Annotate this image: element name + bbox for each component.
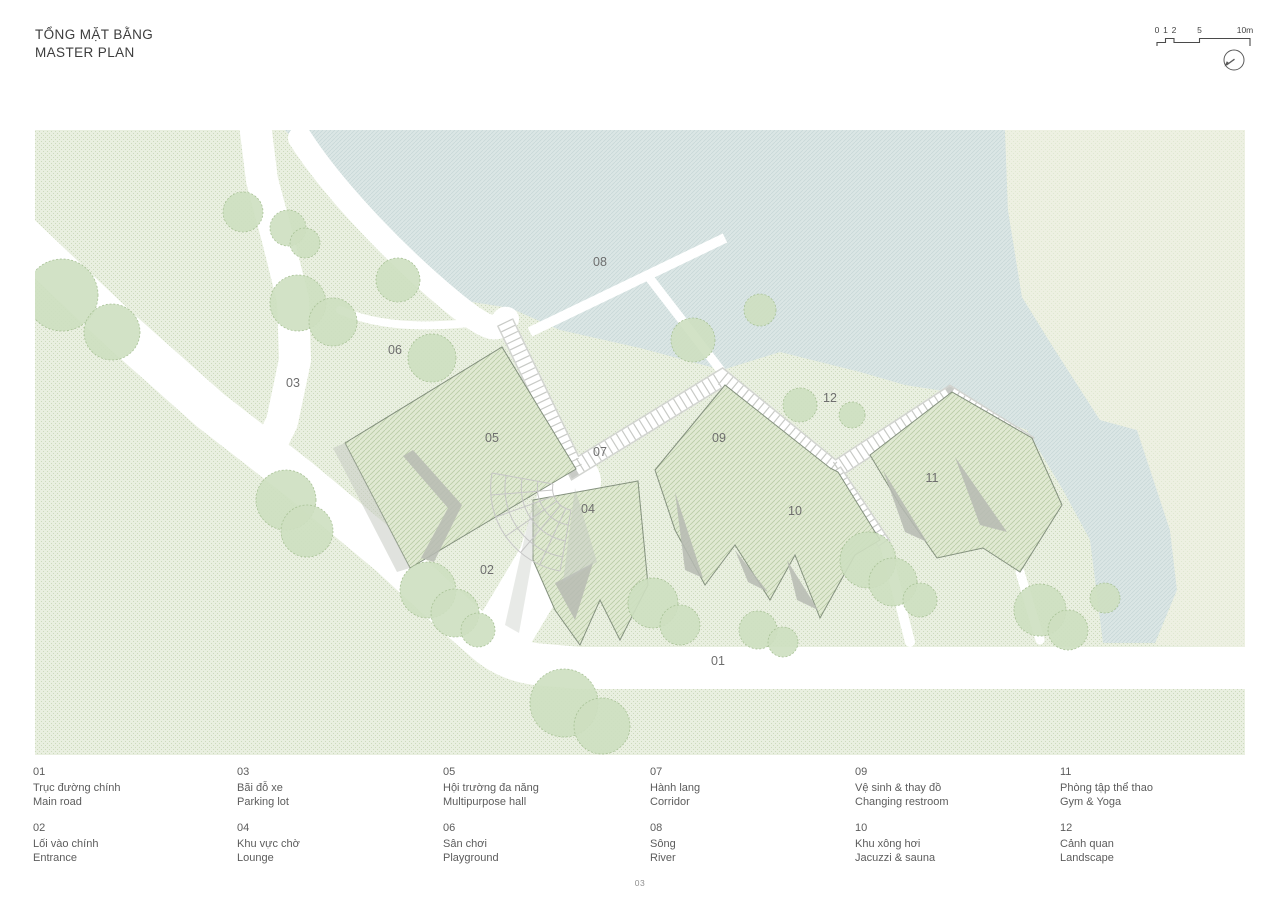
legend-vi: Hội trường đa năng	[443, 781, 633, 796]
legend-num: 06	[443, 821, 633, 836]
legend-en: Landscape	[1060, 851, 1250, 866]
legend-item-12: 12 Cảnh quan Landscape	[1060, 821, 1250, 866]
plan-marker-01: 01	[711, 654, 725, 668]
legend-en: Changing restroom	[855, 795, 1045, 810]
legend-item-03: 03 Bãi đỗ xe Parking lot	[237, 765, 427, 810]
plan-marker-10: 10	[788, 504, 802, 518]
plan-marker-11: 11	[926, 471, 939, 485]
site-plan-drawing: 01 02 03 04 05 06 07 08 09 10 11 12	[35, 130, 1245, 755]
master-plan-sheet: TỔNG MẶT BẰNG MASTER PLAN 0 1 2 5 10m	[0, 0, 1280, 904]
plan-marker-04: 04	[581, 502, 595, 516]
plan-marker-09: 09	[712, 431, 726, 445]
plan-marker-12: 12	[823, 391, 837, 405]
legend-en: Playground	[443, 851, 633, 866]
legend-num: 03	[237, 765, 427, 780]
page-title-vi: TỔNG MẶT BẰNG	[35, 26, 153, 44]
legend-en: Jacuzzi & sauna	[855, 851, 1045, 866]
legend-item-02: 02 Lối vào chính Entrance	[33, 821, 223, 866]
site-plan: 01 02 03 04 05 06 07 08 09 10 11 12	[35, 130, 1245, 755]
legend-num: 11	[1060, 765, 1250, 780]
legend-vi: Cảnh quan	[1060, 837, 1250, 852]
legend-en: Entrance	[33, 851, 223, 866]
legend-en: Parking lot	[237, 795, 427, 810]
legend-vi: Vệ sinh & thay đồ	[855, 781, 1045, 796]
legend-vi: Khu xông hơi	[855, 837, 1045, 852]
legend-item-06: 06 Sân chơi Playground	[443, 821, 633, 866]
legend-vi: Lối vào chính	[33, 837, 223, 852]
scale-tick-1: 1	[1163, 25, 1168, 35]
scale-tick-5: 5	[1197, 25, 1202, 35]
legend-item-01: 01 Trục đường chính Main road	[33, 765, 223, 810]
legend-vi: Sông	[650, 837, 840, 852]
plan-marker-06: 06	[388, 343, 402, 357]
legend-item-04: 04 Khu vực chờ Lounge	[237, 821, 427, 866]
legend-vi: Bãi đỗ xe	[237, 781, 427, 796]
legend-item-11: 11 Phòng tập thể thao Gym & Yoga	[1060, 765, 1250, 810]
legend-num: 10	[855, 821, 1045, 836]
page-number: 03	[0, 878, 1280, 888]
legend-en: River	[650, 851, 840, 866]
plan-marker-07: 07	[593, 445, 607, 459]
legend-en: Lounge	[237, 851, 427, 866]
plan-marker-05: 05	[485, 431, 499, 445]
title-block: TỔNG MẶT BẰNG MASTER PLAN	[35, 26, 153, 62]
scale-bar: 0 1 2 5 10m	[1155, 24, 1255, 79]
legend-item-10: 10 Khu xông hơi Jacuzzi & sauna	[855, 821, 1045, 866]
legend-item-05: 05 Hội trường đa năng Multipurpose hall	[443, 765, 633, 810]
page-title-en: MASTER PLAN	[35, 44, 153, 62]
legend-item-07: 07 Hành lang Corridor	[650, 765, 840, 810]
scale-tick-10m: 10m	[1237, 25, 1254, 35]
legend-en: Corridor	[650, 795, 840, 810]
legend-num: 09	[855, 765, 1045, 780]
plan-marker-03: 03	[286, 376, 300, 390]
scale-tick-2: 2	[1172, 25, 1177, 35]
scale-tick-0: 0	[1155, 25, 1160, 35]
legend-vi: Sân chơi	[443, 837, 633, 852]
legend-num: 05	[443, 765, 633, 780]
legend-en: Gym & Yoga	[1060, 795, 1250, 810]
legend-num: 02	[33, 821, 223, 836]
scale-ruler: 0 1 2 5 10m	[1155, 25, 1253, 46]
legend-num: 08	[650, 821, 840, 836]
plan-marker-08: 08	[593, 255, 607, 269]
north-arrow-icon	[1224, 50, 1244, 70]
legend-vi: Khu vực chờ	[237, 837, 427, 852]
legend-vi: Phòng tập thể thao	[1060, 781, 1250, 796]
legend-num: 01	[33, 765, 223, 780]
legend-num: 07	[650, 765, 840, 780]
plan-marker-02: 02	[480, 563, 494, 577]
legend-item-08: 08 Sông River	[650, 821, 840, 866]
legend-en: Main road	[33, 795, 223, 810]
legend-num: 04	[237, 821, 427, 836]
legend-num: 12	[1060, 821, 1250, 836]
legend-vi: Trục đường chính	[33, 781, 223, 796]
legend-en: Multipurpose hall	[443, 795, 633, 810]
scale-bar-graphic: 0 1 2 5 10m	[1155, 24, 1255, 74]
legend-item-09: 09 Vệ sinh & thay đồ Changing restroom	[855, 765, 1045, 810]
legend-vi: Hành lang	[650, 781, 840, 796]
